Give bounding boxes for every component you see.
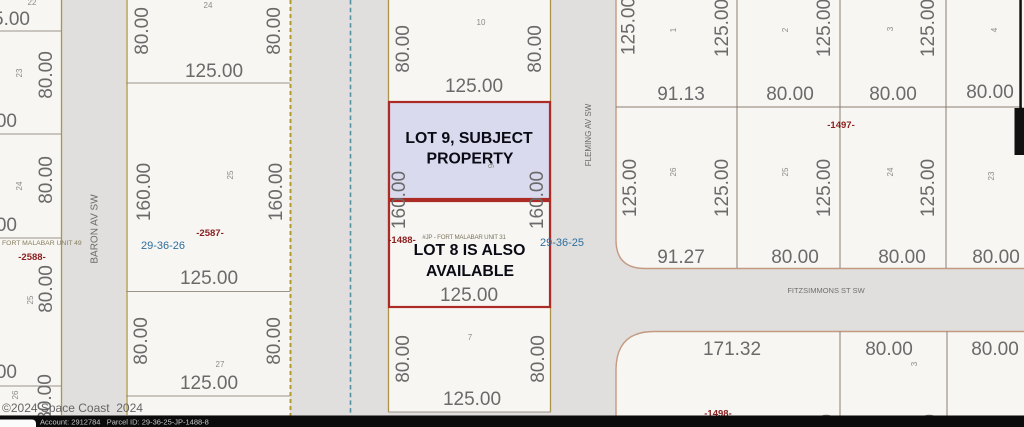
svg-text:©2024 Space Coast 2024: ©2024 Space Coast 2024 [2,401,143,415]
svg-text:80.00: 80.00 [393,335,414,383]
svg-text:PROPERTY: PROPERTY [427,151,514,168]
svg-text:FORT MALABAR UNIT 49: FORT MALABAR UNIT 49 [2,240,82,247]
svg-text:125.00: 125.00 [814,159,835,217]
svg-text:80.00: 80.00 [131,317,152,365]
svg-text:80.00: 80.00 [264,7,285,55]
svg-text:00: 00 [0,362,17,383]
svg-text:80.00: 80.00 [869,84,917,105]
svg-text:00: 00 [0,111,17,132]
svg-text:LOT 9, SUBJECT: LOT 9, SUBJECT [405,130,533,147]
svg-text:24: 24 [204,1,213,10]
svg-text:7: 7 [468,333,473,342]
svg-text:#JP - FORT MALABAR UNIT 31: #JP - FORT MALABAR UNIT 31 [422,234,506,241]
svg-text:125.00: 125.00 [443,389,501,410]
svg-text:125.00: 125.00 [918,159,939,217]
svg-text:125.00: 125.00 [814,0,835,57]
svg-text:-1488-: -1488- [388,235,415,246]
svg-text:BARON AV SW: BARON AV SW [90,194,101,264]
svg-text:125.00: 125.00 [712,159,733,217]
svg-text:80.00: 80.00 [36,156,57,204]
svg-text:80.00: 80.00 [972,247,1020,268]
svg-text:4: 4 [990,27,999,32]
svg-text:125.00: 125.00 [619,0,640,55]
svg-text:24: 24 [15,181,24,190]
svg-text:160.00: 160.00 [527,171,548,229]
svg-text:125.00: 125.00 [445,76,503,97]
svg-text:125.00: 125.00 [180,268,238,289]
svg-text:22: 22 [28,0,37,7]
svg-text:80.00: 80.00 [766,84,814,105]
svg-text:25: 25 [781,167,790,176]
svg-text:160.00: 160.00 [134,163,155,221]
svg-text:Account: 2912784 Parcel ID:: Account: 2912784 Parcel ID: 29-36-25-JP-… [40,418,209,427]
svg-text:91.27: 91.27 [657,247,705,268]
svg-text:23: 23 [987,171,996,180]
svg-text:91.13: 91.13 [657,84,705,105]
svg-text:80.00: 80.00 [36,51,57,99]
svg-text:80.00: 80.00 [878,247,926,268]
svg-text:80.00: 80.00 [771,247,819,268]
svg-text:9: 9 [487,163,496,168]
svg-text:125.00: 125.00 [440,285,498,306]
svg-text:10: 10 [477,18,486,27]
svg-text:00: 00 [0,215,17,236]
svg-text:80.00: 80.00 [264,317,285,365]
svg-text:3: 3 [910,361,919,366]
svg-text:-2588-: -2588- [18,252,45,263]
svg-text:23: 23 [15,68,24,77]
svg-text:3: 3 [886,26,895,31]
svg-text:-1497-: -1497- [827,120,854,131]
svg-text:80.00: 80.00 [36,265,57,313]
svg-text:80.00: 80.00 [966,82,1014,103]
svg-text:80.00: 80.00 [865,339,913,360]
svg-text:80.00: 80.00 [393,25,414,73]
svg-text:2: 2 [781,27,790,32]
svg-text:AVAILABLE: AVAILABLE [426,263,514,280]
svg-text:26: 26 [11,390,20,399]
svg-text:171.32: 171.32 [703,339,761,360]
svg-text:LOT 8 IS ALSO: LOT 8 IS ALSO [414,242,526,259]
svg-text:FITZSIMMONS ST SW: FITZSIMMONS ST SW [787,286,865,295]
svg-text:125.00: 125.00 [918,0,939,57]
svg-text:160.00: 160.00 [389,171,410,229]
svg-text:80.00: 80.00 [132,7,153,55]
svg-text:25: 25 [26,295,35,304]
svg-text:-2587-: -2587- [196,228,223,239]
svg-text:26: 26 [669,167,678,176]
svg-text:5.00: 5.00 [0,9,30,30]
svg-text:125.00: 125.00 [620,159,641,217]
svg-text:160.00: 160.00 [266,163,287,221]
svg-text:125.00: 125.00 [180,373,238,394]
svg-text:125.00: 125.00 [185,61,243,82]
svg-text:1: 1 [669,27,678,32]
svg-text:80.00: 80.00 [971,339,1019,360]
svg-text:FLEMING AV SW: FLEMING AV SW [584,103,593,166]
svg-text:29-36-25: 29-36-25 [540,237,584,249]
svg-text:27: 27 [216,360,225,369]
svg-text:80.00: 80.00 [528,335,549,383]
svg-text:25: 25 [226,170,235,179]
svg-text:29-36-26: 29-36-26 [141,240,185,252]
svg-text:80.00: 80.00 [525,25,546,73]
svg-text:125.00: 125.00 [712,0,733,57]
svg-text:24: 24 [886,167,895,176]
